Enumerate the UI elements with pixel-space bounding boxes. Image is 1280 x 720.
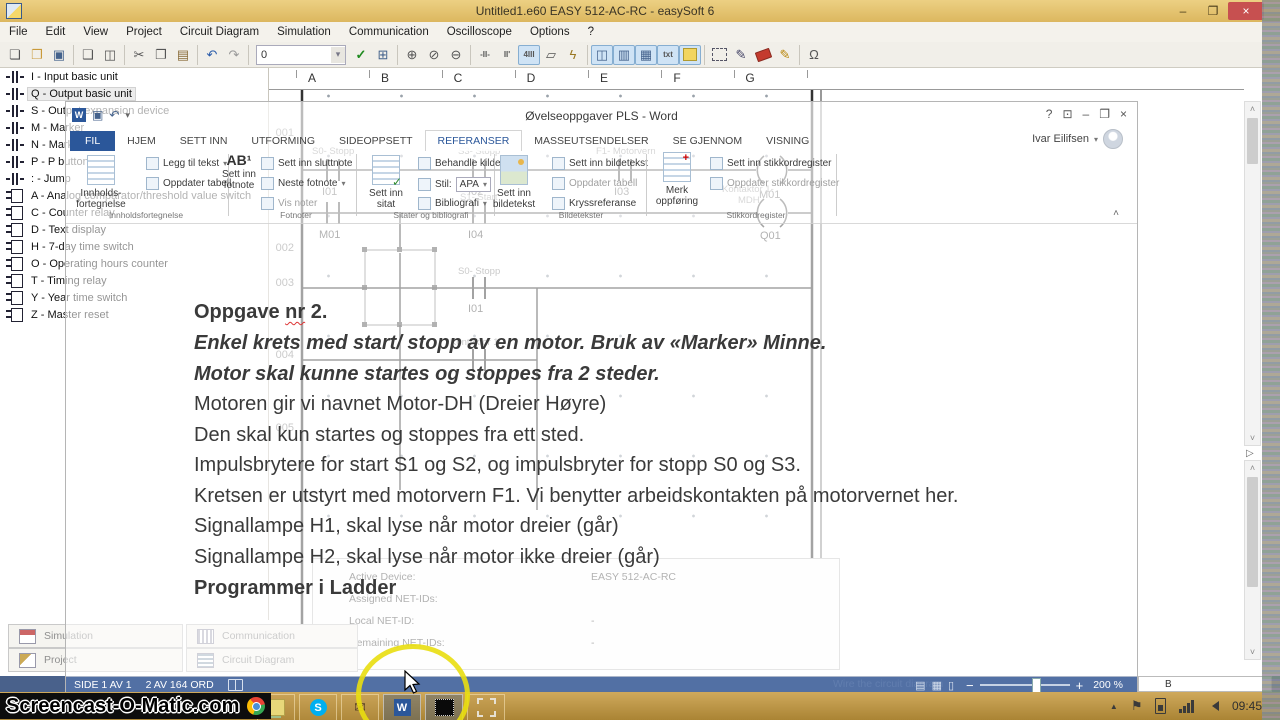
scrollbar-thumb[interactable] xyxy=(1247,477,1258,587)
avatar xyxy=(1103,129,1123,149)
simulation-icon xyxy=(19,629,36,644)
col-a: A xyxy=(297,71,327,85)
wire-tool-icon[interactable]: 4III xyxy=(518,45,540,65)
doc-line: Signallampe H1, skal lyse når motor drei… xyxy=(194,515,619,538)
update-index-button[interactable]: Oppdater stikkordregister xyxy=(710,177,839,190)
screen: Untitled1.e60 EASY 512-AC-RC - easySoft … xyxy=(0,0,1280,720)
col-d: D xyxy=(516,71,546,85)
easysoft-app-icon xyxy=(6,3,22,19)
help-icon[interactable]: ? xyxy=(1046,107,1053,121)
close-button[interactable]: × xyxy=(1228,2,1264,20)
new-icon[interactable]: ❏ xyxy=(4,45,26,65)
cross-reference-button[interactable]: Kryssreferanse xyxy=(552,197,636,210)
scrollbar-thumb[interactable] xyxy=(1247,118,1258,164)
group-label-toc: Innholdsfortegnelse xyxy=(66,210,226,220)
text-tool-icon[interactable]: txt xyxy=(657,45,679,65)
contact-icon xyxy=(6,173,24,185)
doc-line: Enkel krets med start/ stopp av en motor… xyxy=(194,332,826,355)
manage-sources-icon xyxy=(418,157,431,170)
insert-index-button[interactable]: Sett inn stikkordregister xyxy=(710,157,832,170)
word-window: Øvelseoppgaver PLS - Word W ▣ ↶ ▾ ? ⊡ – … xyxy=(65,101,1138,692)
stamp-tool-icon[interactable]: Ω xyxy=(803,45,825,65)
insert-endnote-button[interactable]: Sett inn sluttnote xyxy=(261,157,353,170)
maximize-button[interactable]: ❐ xyxy=(1198,2,1228,20)
edit-tool-icon[interactable]: ✎ xyxy=(730,45,752,65)
insert-citation-big-button[interactable]: ✓ Sett innsitat xyxy=(358,155,414,210)
easysoft-titlebar: Untitled1.e60 EASY 512-AC-RC - easySoft … xyxy=(0,0,1280,22)
undo-icon[interactable]: ↶ xyxy=(109,108,119,122)
doc-line: Impulsbrytere for start S1 og S2, og imp… xyxy=(194,454,801,477)
word-statusbar: SIDE 1 AV 1 2 AV 164 ORD ▤▦▯ − + 200 % xyxy=(66,677,1137,693)
doc-line: Signallampe H2, skal lyse når motor ikke… xyxy=(194,546,660,569)
edit2-tool-icon[interactable]: ✎ xyxy=(774,45,796,65)
style-icon xyxy=(418,178,431,191)
proofing-icon[interactable] xyxy=(228,679,243,691)
tray-expand-icon[interactable]: ▲ xyxy=(1110,702,1118,711)
doc-line: Motor skal kunne startes og stoppes fra … xyxy=(194,363,660,386)
eraser-tool-icon[interactable] xyxy=(752,45,774,65)
mouse-cursor xyxy=(403,670,423,696)
doc-line: Motoren gir vi navnet Motor-DH (Dreier H… xyxy=(194,393,606,416)
toc-big-button[interactable]: Innholds-fortegnelse xyxy=(70,155,132,210)
menu-edit[interactable]: Edit xyxy=(37,26,75,38)
power-flow-icon[interactable]: ϟ xyxy=(562,45,584,65)
relay-icon xyxy=(6,189,24,202)
ribbon-display-icon[interactable]: ⊡ xyxy=(1062,107,1072,121)
menu-help[interactable]: ? xyxy=(579,26,603,38)
word-window-title: Øvelseoppgaver PLS - Word xyxy=(66,109,1137,123)
account-menu[interactable]: Ivar Eilifsen ▾ xyxy=(1032,129,1123,149)
mark-entry-icon: + xyxy=(663,152,691,182)
value-combobox[interactable]: 0 ▾ xyxy=(256,45,346,65)
layers-icon[interactable]: ▱ xyxy=(540,45,562,65)
app-taskbar-icon[interactable] xyxy=(467,694,505,720)
zoom-original-icon[interactable]: ⊘ xyxy=(423,45,445,65)
doc-line: Den skal kun startes og stoppes fra ett … xyxy=(194,424,584,447)
view-shortcuts[interactable]: ▤▦▯ xyxy=(915,679,954,692)
note-tool-icon[interactable] xyxy=(679,45,701,65)
endnote-icon xyxy=(261,157,274,170)
grid-table-icon[interactable]: ⊞ xyxy=(372,45,394,65)
play-icon[interactable]: ▷ xyxy=(1246,448,1254,459)
system-tray: ▲ ⚑ 09:45 xyxy=(1110,692,1262,720)
caption-icon xyxy=(500,155,528,185)
flag-icon[interactable]: ⚑ xyxy=(1131,698,1143,714)
toolbox-item-output[interactable]: Q - Output basic unit xyxy=(0,85,268,102)
easysoft-toolbar: ❏ ❐ ▣ ❑ ◫ ✂ ❐ ▤ ↶ ↷ 0 ▾ ✓ ⊞ ⊕ ⊘ ⊖ -II- I… xyxy=(0,42,1280,68)
col-f: F xyxy=(662,71,692,85)
easysoft-window-title: Untitled1.e60 EASY 512-AC-RC - easySoft … xyxy=(22,4,1168,18)
toolbox-item-input[interactable]: I - Input basic unit xyxy=(0,68,268,85)
zoom-in-icon[interactable]: + xyxy=(1076,678,1084,693)
video-noise-strip xyxy=(1262,0,1280,720)
group-label-footnotes: Fotnoter xyxy=(236,210,356,220)
scroll-up-icon[interactable]: ˄ xyxy=(1245,104,1260,114)
combobox-value: 0 xyxy=(261,49,267,61)
scroll-up-icon[interactable]: ˄ xyxy=(1245,463,1260,473)
easysoft-vertical-scrollbar[interactable]: ˄ ˅ xyxy=(1244,460,1261,660)
col-b: B xyxy=(370,71,400,85)
relay-icon xyxy=(6,223,24,236)
eraser-icon xyxy=(754,47,772,62)
show-notes-icon xyxy=(261,197,274,210)
doc-line: Programmer i Ladder xyxy=(194,577,396,600)
redo-icon[interactable]: ↷ xyxy=(223,45,245,65)
insert-index-icon xyxy=(710,157,723,170)
col-e: E xyxy=(589,71,619,85)
tab-fil[interactable]: FIL xyxy=(70,131,115,151)
menu-view[interactable]: View xyxy=(74,26,117,38)
word-window-controls: ? ⊡ – ❐ × xyxy=(1046,107,1127,121)
battery-icon[interactable] xyxy=(1155,698,1166,714)
contact-icon xyxy=(6,139,24,151)
status-side-box: B xyxy=(1138,676,1272,692)
tab-visning[interactable]: VISNING xyxy=(754,131,821,151)
menu-options[interactable]: Options xyxy=(521,26,579,38)
tab-hjem[interactable]: HJEM xyxy=(115,131,168,151)
undo-icon[interactable]: ↶ xyxy=(201,45,223,65)
relay-icon xyxy=(6,274,24,287)
style-selector[interactable]: Stil:APA▾ xyxy=(418,177,491,192)
tab-utforming[interactable]: UTFORMING xyxy=(239,131,327,151)
save-icon[interactable]: ▣ xyxy=(48,45,70,65)
menu-communication[interactable]: Communication xyxy=(340,26,438,38)
tab-sideoppsett[interactable]: SIDEOPPSETT xyxy=(327,131,425,151)
zoom-out-icon[interactable]: − xyxy=(966,678,974,693)
chevron-down-icon[interactable]: ▾ xyxy=(331,47,345,63)
minimize-button[interactable]: – xyxy=(1168,2,1198,20)
minimize-icon[interactable]: – xyxy=(1083,107,1090,121)
coil-tool-icon[interactable]: II' xyxy=(496,45,518,65)
zoom-in-icon[interactable]: ⊕ xyxy=(401,45,423,65)
mark-entry-big-button[interactable]: + Merkoppføring xyxy=(650,152,704,207)
relay-icon xyxy=(6,240,24,253)
open-icon[interactable]: ❐ xyxy=(26,45,48,65)
close-icon[interactable]: × xyxy=(1120,107,1127,121)
page-indicator[interactable]: SIDE 1 AV 1 xyxy=(74,679,132,691)
relay-icon xyxy=(6,257,24,270)
note-icon xyxy=(683,48,697,61)
word-vertical-scrollbar[interactable]: ˄ ˅ xyxy=(1244,101,1261,446)
scroll-down-icon[interactable]: ˅ xyxy=(1245,647,1260,657)
contact-icon xyxy=(6,88,24,100)
paste-icon[interactable]: ▤ xyxy=(172,45,194,65)
speaker-icon[interactable] xyxy=(1207,701,1219,711)
menu-simulation[interactable]: Simulation xyxy=(268,26,340,38)
copy-icon[interactable]: ❐ xyxy=(150,45,172,65)
watermark: Screencast-O-Matic.com xyxy=(0,693,271,719)
collapse-ribbon-icon[interactable]: ˄ xyxy=(1113,208,1119,219)
next-footnote-icon xyxy=(261,177,274,190)
clock[interactable]: 09:45 xyxy=(1232,699,1262,713)
network-icon[interactable] xyxy=(1179,700,1194,713)
update-table-icon xyxy=(146,177,159,190)
doc-heading: Oppgave nr 2. xyxy=(194,301,327,324)
tab-masseutsendelser[interactable]: MASSEUTSENDELSER xyxy=(522,131,660,151)
qat-customize-icon[interactable]: ▾ xyxy=(125,110,130,121)
maximize-icon[interactable]: ❐ xyxy=(1099,107,1110,121)
tab-se-gjennom[interactable]: SE GJENNOM xyxy=(661,131,754,151)
zoom-level[interactable]: 200 % xyxy=(1093,679,1123,691)
column-header: A B C D E F G xyxy=(269,68,1244,90)
col-g: G xyxy=(735,71,765,85)
citation-icon: ✓ xyxy=(372,155,400,185)
selection-rect-icon xyxy=(712,48,727,61)
insert-caption-big-button[interactable]: Sett innbildetekst xyxy=(484,155,544,210)
contact-icon xyxy=(6,122,24,134)
menu-project[interactable]: Project xyxy=(117,26,171,38)
contact-icon xyxy=(6,71,24,83)
contact-icon xyxy=(6,105,24,117)
col-c: C xyxy=(443,71,473,85)
relay-icon xyxy=(6,206,24,219)
relay-icon xyxy=(6,291,24,304)
relay-icon xyxy=(6,308,24,321)
view-mode-2-icon[interactable]: ▥ xyxy=(613,45,635,65)
bibliography-button[interactable]: Bibliografi▾ xyxy=(418,197,487,210)
tab-referanser[interactable]: REFERANSER xyxy=(425,130,523,151)
print-preview-icon[interactable]: ◫ xyxy=(99,45,121,65)
add-text-icon xyxy=(146,157,159,170)
zoom-out-icon[interactable]: ⊖ xyxy=(445,45,467,65)
group-label-index: Stikkordregister xyxy=(686,210,826,220)
quick-access-toolbar: W ▣ ↶ ▾ xyxy=(72,108,130,122)
menu-circuit-diagram[interactable]: Circuit Diagram xyxy=(171,26,268,38)
account-name: Ivar Eilifsen xyxy=(1032,133,1089,145)
group-label-citations: Sitater og bibliografi xyxy=(361,210,501,220)
select-tool-icon[interactable] xyxy=(708,45,730,65)
scroll-down-icon[interactable]: ˅ xyxy=(1245,433,1260,443)
zoom-slider-thumb[interactable] xyxy=(1032,678,1041,693)
tab-sett-inn[interactable]: SETT INN xyxy=(168,131,240,151)
word-app-icon: W xyxy=(72,108,86,122)
show-notes-button[interactable]: Vis noter xyxy=(261,197,317,210)
cross-reference-icon xyxy=(552,197,565,210)
contact-icon xyxy=(6,156,24,168)
view-mode-1-icon[interactable]: ◫ xyxy=(591,45,613,65)
update-index-icon xyxy=(710,177,723,190)
ribbon-tabs: FIL HJEM SETT INN UTFORMING SIDEOPPSETT … xyxy=(70,129,821,151)
grid-toggle-icon[interactable]: ▦ xyxy=(635,45,657,65)
doc-line: Kretsen er utstyrt med motorvern F1. Vi … xyxy=(194,485,958,508)
easysoft-menubar: File Edit View Project Circuit Diagram S… xyxy=(0,22,1280,43)
menu-file[interactable]: File xyxy=(0,26,37,38)
update-caption-table-button[interactable]: Oppdater tabell xyxy=(552,177,637,190)
caption-small-icon xyxy=(552,157,565,170)
next-footnote-button[interactable]: Neste fotnote▾ xyxy=(261,177,346,190)
toc-icon xyxy=(87,155,115,185)
skype-taskbar-icon[interactable]: S xyxy=(299,694,337,720)
chrome-icon xyxy=(247,697,265,715)
print-icon[interactable]: ❑ xyxy=(77,45,99,65)
menu-oscilloscope[interactable]: Oscilloscope xyxy=(438,26,521,38)
insert-caption-button[interactable]: Sett inn bildetekst xyxy=(552,157,648,170)
save-icon[interactable]: ▣ xyxy=(92,108,103,122)
word-count[interactable]: 2 AV 164 ORD xyxy=(146,679,214,691)
project-icon xyxy=(19,653,36,668)
cut-icon[interactable]: ✂ xyxy=(128,45,150,65)
zoom-slider[interactable] xyxy=(980,684,1070,686)
group-label-captions: Bildetekster xyxy=(516,210,646,220)
chevron-down-icon: ▾ xyxy=(1094,135,1098,144)
bibliography-icon xyxy=(418,197,431,210)
apply-check-icon[interactable]: ✓ xyxy=(350,45,372,65)
update-table-icon xyxy=(552,177,565,190)
contact-tool-icon[interactable]: -II- xyxy=(474,45,496,65)
